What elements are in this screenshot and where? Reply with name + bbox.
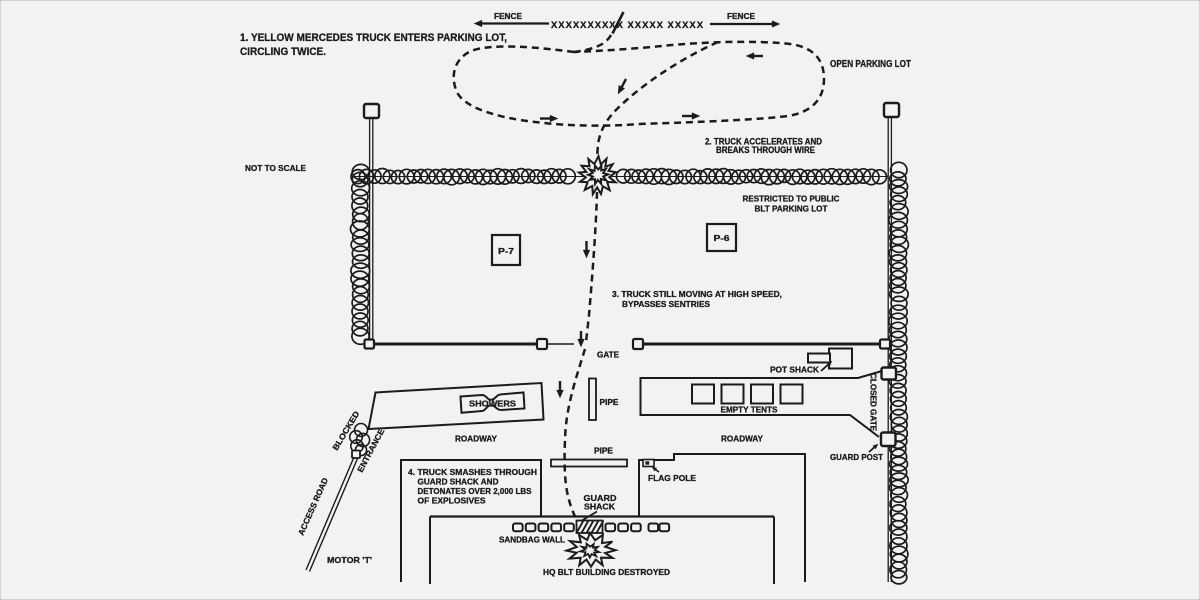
svg-text:DETONATES OVER 2,000 LBS: DETONATES OVER 2,000 LBS	[418, 486, 532, 496]
svg-text:FENCE: FENCE	[727, 12, 756, 21]
svg-text:RESTRICTED TO PUBLIC: RESTRICTED TO PUBLIC	[743, 194, 840, 204]
svg-text:SHACK: SHACK	[584, 503, 615, 512]
svg-text:4. TRUCK SMASHES THROUGH: 4. TRUCK SMASHES THROUGH	[408, 467, 537, 477]
svg-text:GUARD POST: GUARD POST	[830, 452, 884, 462]
svg-text:HQ BLT BUILDING DESTROYED: HQ BLT BUILDING DESTROYED	[543, 567, 670, 577]
svg-text:1. YELLOW MERCEDES TRUCK ENTER: 1. YELLOW MERCEDES TRUCK ENTERS PARKING …	[240, 32, 507, 44]
svg-text:ROADWAY: ROADWAY	[455, 434, 497, 444]
svg-text:P-7: P-7	[498, 247, 515, 256]
svg-text:BLT PARKING LOT: BLT PARKING LOT	[755, 204, 829, 214]
svg-text:SHOWERS: SHOWERS	[469, 400, 517, 409]
svg-text:GUARD SHACK AND: GUARD SHACK AND	[418, 477, 499, 487]
svg-text:EMPTY TENTS: EMPTY TENTS	[721, 405, 778, 415]
svg-text:NOT TO SCALE: NOT TO SCALE	[245, 163, 306, 173]
svg-text:SANDBAG WALL: SANDBAG WALL	[499, 536, 565, 545]
svg-text:BREAKS THROUGH WIRE: BREAKS THROUGH WIRE	[716, 145, 815, 155]
svg-text:MOTOR 'T': MOTOR 'T'	[327, 555, 372, 565]
svg-text:GATE: GATE	[597, 350, 619, 360]
svg-text:PIPE: PIPE	[594, 447, 614, 456]
svg-text:FLAG POLE: FLAG POLE	[648, 474, 697, 483]
svg-text:POT SHACK: POT SHACK	[770, 365, 820, 375]
svg-text:OF EXPLOSIVES: OF EXPLOSIVES	[418, 496, 486, 506]
svg-text:P-6: P-6	[714, 234, 731, 243]
svg-text:3. TRUCK STILL MOVING AT HIGH: 3. TRUCK STILL MOVING AT HIGH SPEED,	[612, 289, 782, 299]
svg-text:OPEN PARKING LOT: OPEN PARKING LOT	[830, 59, 911, 70]
svg-text:PIPE: PIPE	[600, 398, 620, 407]
svg-text:FENCE: FENCE	[494, 12, 523, 21]
svg-text:BYPASSES SENTRIES: BYPASSES SENTRIES	[622, 299, 710, 309]
svg-text:CIRCLING TWICE.: CIRCLING TWICE.	[240, 46, 326, 58]
svg-text:CLOSED GATE: CLOSED GATE	[869, 373, 878, 432]
svg-text:XXXXXXXXXX XXXXX XXXXX: XXXXXXXXXX XXXXX XXXXX	[551, 20, 704, 31]
svg-text:ROADWAY: ROADWAY	[721, 434, 763, 444]
